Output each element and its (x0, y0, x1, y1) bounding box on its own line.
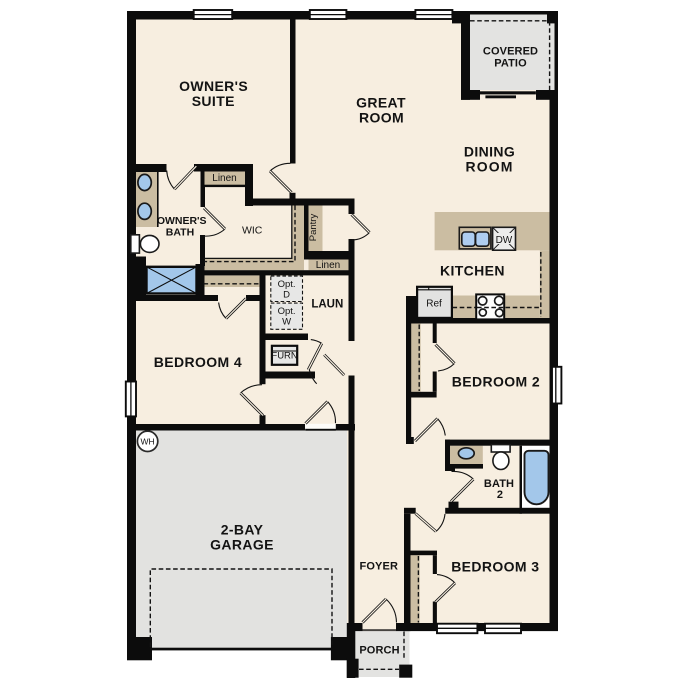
svg-text:WH: WH (141, 436, 155, 446)
svg-text:WIC: WIC (242, 225, 263, 237)
svg-text:GREAT: GREAT (356, 95, 406, 111)
svg-text:D: D (283, 290, 290, 301)
svg-text:BEDROOM 4: BEDROOM 4 (154, 354, 242, 370)
svg-text:Linen: Linen (212, 173, 236, 184)
svg-text:Opt.: Opt. (278, 279, 296, 290)
svg-text:SUITE: SUITE (192, 93, 235, 109)
svg-text:OWNER'S: OWNER'S (179, 78, 248, 94)
svg-text:Opt.: Opt. (278, 306, 296, 317)
svg-text:2: 2 (497, 489, 503, 501)
svg-text:BATH: BATH (166, 226, 194, 238)
svg-text:Pantry: Pantry (308, 214, 319, 242)
svg-text:OWNER'S: OWNER'S (157, 215, 207, 227)
svg-text:FOYER: FOYER (360, 560, 399, 572)
svg-text:W: W (282, 317, 291, 328)
svg-text:FURN: FURN (271, 350, 298, 361)
svg-text:PORCH: PORCH (359, 645, 399, 657)
svg-text:DINING: DINING (464, 144, 515, 160)
svg-text:DW: DW (496, 235, 513, 246)
svg-text:ROOM: ROOM (359, 110, 404, 126)
svg-text:LAUN: LAUN (311, 298, 343, 310)
svg-text:2-BAY: 2-BAY (221, 522, 264, 538)
svg-text:COVERED: COVERED (483, 46, 538, 58)
svg-text:BEDROOM 3: BEDROOM 3 (451, 558, 539, 574)
svg-text:PATIO: PATIO (494, 57, 527, 69)
svg-text:KITCHEN: KITCHEN (440, 263, 505, 279)
svg-text:GARAGE: GARAGE (210, 537, 274, 553)
svg-text:BEDROOM 2: BEDROOM 2 (452, 373, 540, 389)
svg-text:Ref: Ref (426, 299, 442, 310)
svg-text:Linen: Linen (316, 260, 340, 271)
svg-text:ROOM: ROOM (466, 159, 514, 175)
